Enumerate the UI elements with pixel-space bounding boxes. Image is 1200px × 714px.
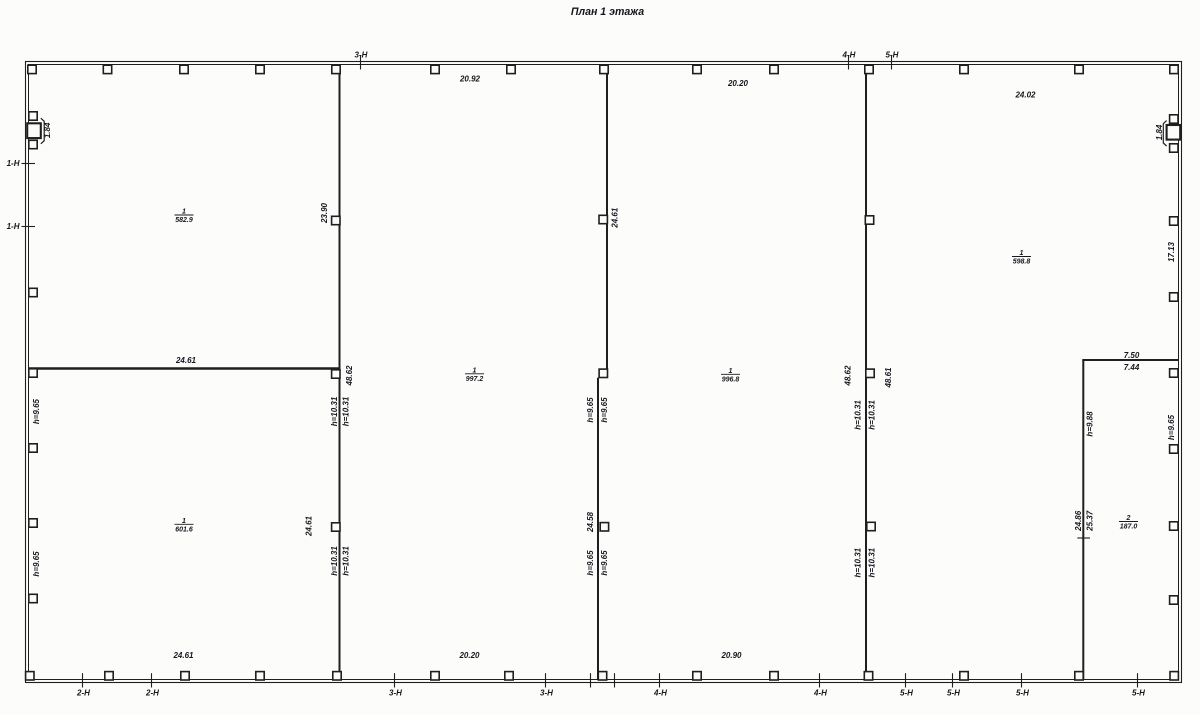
svg-text:План 1 этажа: План 1 этажа xyxy=(571,6,644,18)
svg-text:20.92: 20.92 xyxy=(459,75,481,84)
svg-text:20.20: 20.20 xyxy=(458,651,480,660)
svg-text:7.50: 7.50 xyxy=(1124,351,1140,360)
svg-text:h=10.31: h=10.31 xyxy=(330,396,339,426)
svg-text:1-Н: 1-Н xyxy=(7,159,20,168)
svg-text:2-Н: 2-Н xyxy=(145,689,159,698)
svg-text:5-Н: 5-Н xyxy=(900,689,913,698)
svg-text:24.61: 24.61 xyxy=(175,356,197,365)
svg-text:598.8: 598.8 xyxy=(1013,259,1031,266)
svg-text:h=9.88: h=9.88 xyxy=(1086,411,1095,437)
svg-text:h=9.65: h=9.65 xyxy=(32,398,41,424)
svg-text:24.61: 24.61 xyxy=(611,207,620,229)
svg-text:5-Н: 5-Н xyxy=(1016,689,1029,698)
svg-text:7.44: 7.44 xyxy=(1124,363,1140,372)
svg-text:3-Н: 3-Н xyxy=(389,689,402,698)
svg-text:h=10.31: h=10.31 xyxy=(330,546,339,576)
svg-text:48.62: 48.62 xyxy=(844,365,853,387)
svg-text:5-Н: 5-Н xyxy=(886,51,899,60)
svg-text:5-Н: 5-Н xyxy=(947,689,960,698)
svg-text:24.86: 24.86 xyxy=(1074,510,1083,532)
svg-text:h=10.31: h=10.31 xyxy=(854,400,863,430)
svg-text:1: 1 xyxy=(473,367,477,374)
svg-text:48.61: 48.61 xyxy=(884,367,893,389)
svg-text:4-Н: 4-Н xyxy=(653,689,667,698)
svg-text:1.84: 1.84 xyxy=(1155,124,1164,140)
svg-text:5-Н: 5-Н xyxy=(1132,689,1145,698)
svg-text:h=10.31: h=10.31 xyxy=(342,396,351,426)
svg-text:996.8: 996.8 xyxy=(722,376,740,383)
svg-text:20.90: 20.90 xyxy=(720,651,742,660)
svg-text:24.02: 24.02 xyxy=(1014,90,1036,99)
svg-text:601.6: 601.6 xyxy=(175,526,193,533)
svg-text:187.0: 187.0 xyxy=(1120,524,1138,531)
svg-text:1: 1 xyxy=(182,518,186,525)
svg-text:h=9.65: h=9.65 xyxy=(600,550,609,576)
svg-text:1-Н: 1-Н xyxy=(7,222,20,231)
svg-text:2-Н: 2-Н xyxy=(76,689,90,698)
svg-text:h=9.65: h=9.65 xyxy=(586,397,595,423)
svg-text:23.90: 23.90 xyxy=(320,202,329,224)
svg-text:h=9.65: h=9.65 xyxy=(1167,414,1176,440)
svg-text:24.61: 24.61 xyxy=(172,651,194,660)
svg-text:h=9.65: h=9.65 xyxy=(32,551,41,577)
svg-text:24.58: 24.58 xyxy=(586,511,595,533)
svg-text:3-Н: 3-Н xyxy=(540,689,553,698)
svg-text:17.13: 17.13 xyxy=(1167,241,1176,262)
svg-text:h=10.31: h=10.31 xyxy=(342,546,351,576)
svg-text:997.2: 997.2 xyxy=(466,376,484,383)
svg-text:h=9.65: h=9.65 xyxy=(600,397,609,423)
svg-text:3-Н: 3-Н xyxy=(355,51,368,60)
svg-text:h=10.31: h=10.31 xyxy=(867,400,876,430)
svg-text:24.61: 24.61 xyxy=(305,515,314,537)
svg-text:20.20: 20.20 xyxy=(727,79,749,88)
svg-text:48.62: 48.62 xyxy=(345,365,354,387)
svg-text:2: 2 xyxy=(1126,515,1131,522)
svg-text:1: 1 xyxy=(1020,250,1024,257)
svg-text:4-Н: 4-Н xyxy=(842,51,856,60)
svg-text:1: 1 xyxy=(729,368,733,375)
svg-text:h=9.65: h=9.65 xyxy=(586,550,595,576)
svg-text:25.37: 25.37 xyxy=(1086,510,1095,532)
svg-text:h=10.31: h=10.31 xyxy=(854,547,863,577)
svg-text:582.9: 582.9 xyxy=(175,217,193,224)
svg-text:4-Н: 4-Н xyxy=(813,689,827,698)
svg-text:1: 1 xyxy=(182,209,186,216)
svg-text:1.84: 1.84 xyxy=(43,122,52,138)
svg-text:h=10.31: h=10.31 xyxy=(867,547,876,577)
